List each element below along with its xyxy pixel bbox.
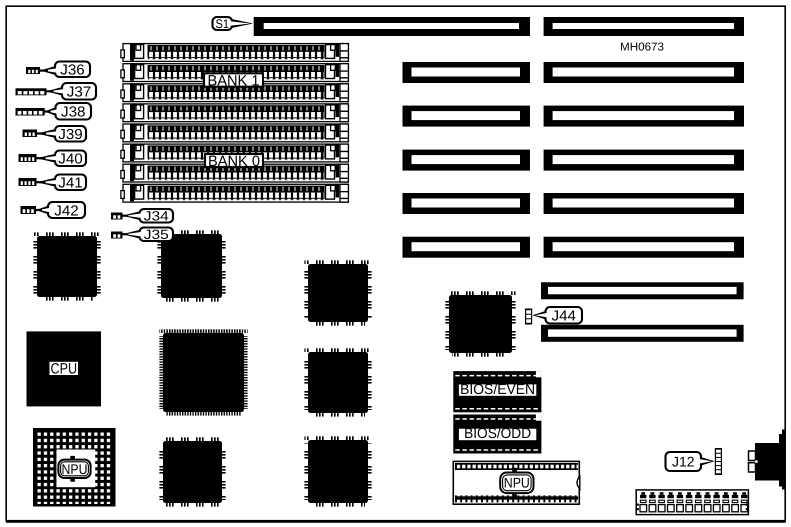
svg-text:J34: J34 (144, 209, 170, 224)
svg-text:J12: J12 (672, 454, 695, 470)
svg-text:NPU: NPU (62, 461, 88, 477)
svg-text:J40: J40 (58, 152, 83, 168)
svg-text:S1: S1 (216, 17, 230, 31)
svg-text:BANK 0: BANK 0 (208, 153, 260, 170)
svg-text:J44: J44 (552, 309, 577, 325)
svg-text:J36: J36 (60, 63, 85, 79)
svg-text:J35: J35 (144, 227, 169, 242)
svg-text:MH0673: MH0673 (620, 42, 664, 54)
svg-text:BIOS/EVEN: BIOS/EVEN (460, 382, 535, 398)
svg-text:J41: J41 (58, 176, 83, 192)
svg-text:NPU: NPU (504, 475, 530, 491)
svg-text:J42: J42 (54, 203, 79, 219)
svg-text:J37: J37 (67, 85, 92, 101)
svg-text:CPU: CPU (51, 361, 78, 378)
svg-text:BIOS/ODD: BIOS/ODD (464, 426, 531, 442)
svg-text:BANK 1: BANK 1 (208, 73, 260, 90)
svg-text:J38: J38 (61, 105, 86, 121)
svg-text:J39: J39 (58, 127, 83, 143)
